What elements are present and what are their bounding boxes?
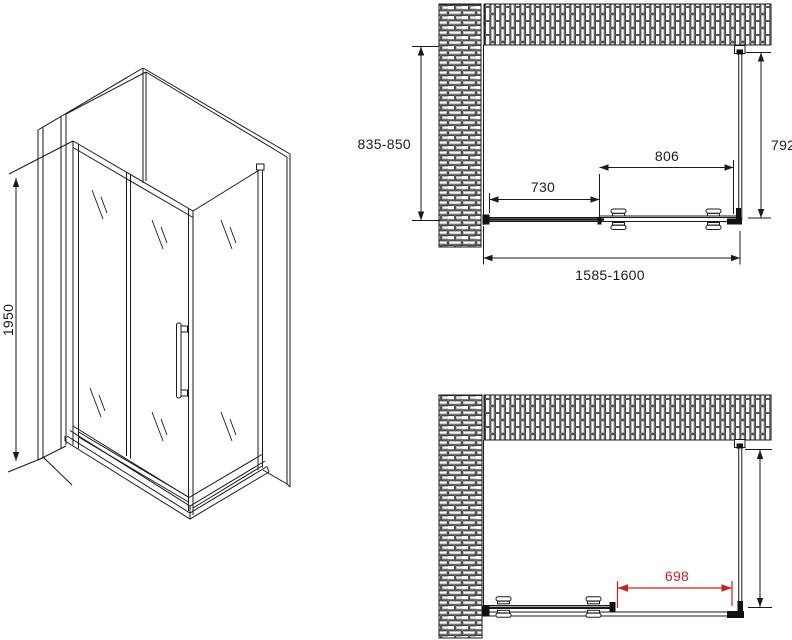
iso-back-wall	[143, 68, 290, 487]
dimension-height-1950: 1950	[0, 141, 73, 472]
glass-sparkles	[90, 190, 236, 441]
dimension-total-width: 1585-1600	[484, 226, 741, 283]
side-panel-open	[727, 440, 745, 619]
iso-shower-tray	[65, 426, 269, 519]
brick-wall-back	[484, 4, 771, 45]
dimension-side-panel: 792	[746, 53, 792, 219]
technical-drawing-page: 1950	[0, 0, 792, 640]
brick-wall-left	[439, 4, 481, 247]
brick-wall-left-open	[439, 395, 482, 638]
dimension-side-unlabeled	[745, 450, 772, 608]
iso-side-panel	[193, 164, 264, 508]
dim-label-806: 806	[655, 148, 679, 164]
plan-view-closed: 835-850 792 730 806	[358, 4, 792, 283]
iso-left-wall	[38, 68, 146, 485]
dimension-wall-depth: 835-850	[358, 47, 440, 221]
dim-label-835-850: 835-850	[358, 136, 411, 152]
dimension-door-panel: 806	[600, 148, 734, 214]
shower-enclosure-drawing: 1950	[0, 0, 792, 640]
isometric-view: 1950	[0, 68, 290, 519]
dim-label-1585-1600: 1585-1600	[575, 267, 645, 283]
iso-door-frame	[73, 141, 193, 515]
dim-label-698: 698	[665, 568, 689, 584]
dimension-fixed-panel: 730	[490, 174, 600, 223]
iso-door-handle	[177, 323, 188, 398]
plan-view-open: 698	[439, 395, 772, 638]
door-rollers-closed	[611, 209, 721, 230]
dim-label-1950: 1950	[0, 304, 16, 336]
side-panel-closed	[727, 46, 745, 225]
door-track-open	[483, 602, 743, 617]
dim-label-792: 792	[771, 137, 792, 153]
brick-wall-back-open	[484, 395, 771, 440]
dim-label-730: 730	[531, 179, 555, 195]
dimension-opening-698: 698	[618, 568, 733, 608]
